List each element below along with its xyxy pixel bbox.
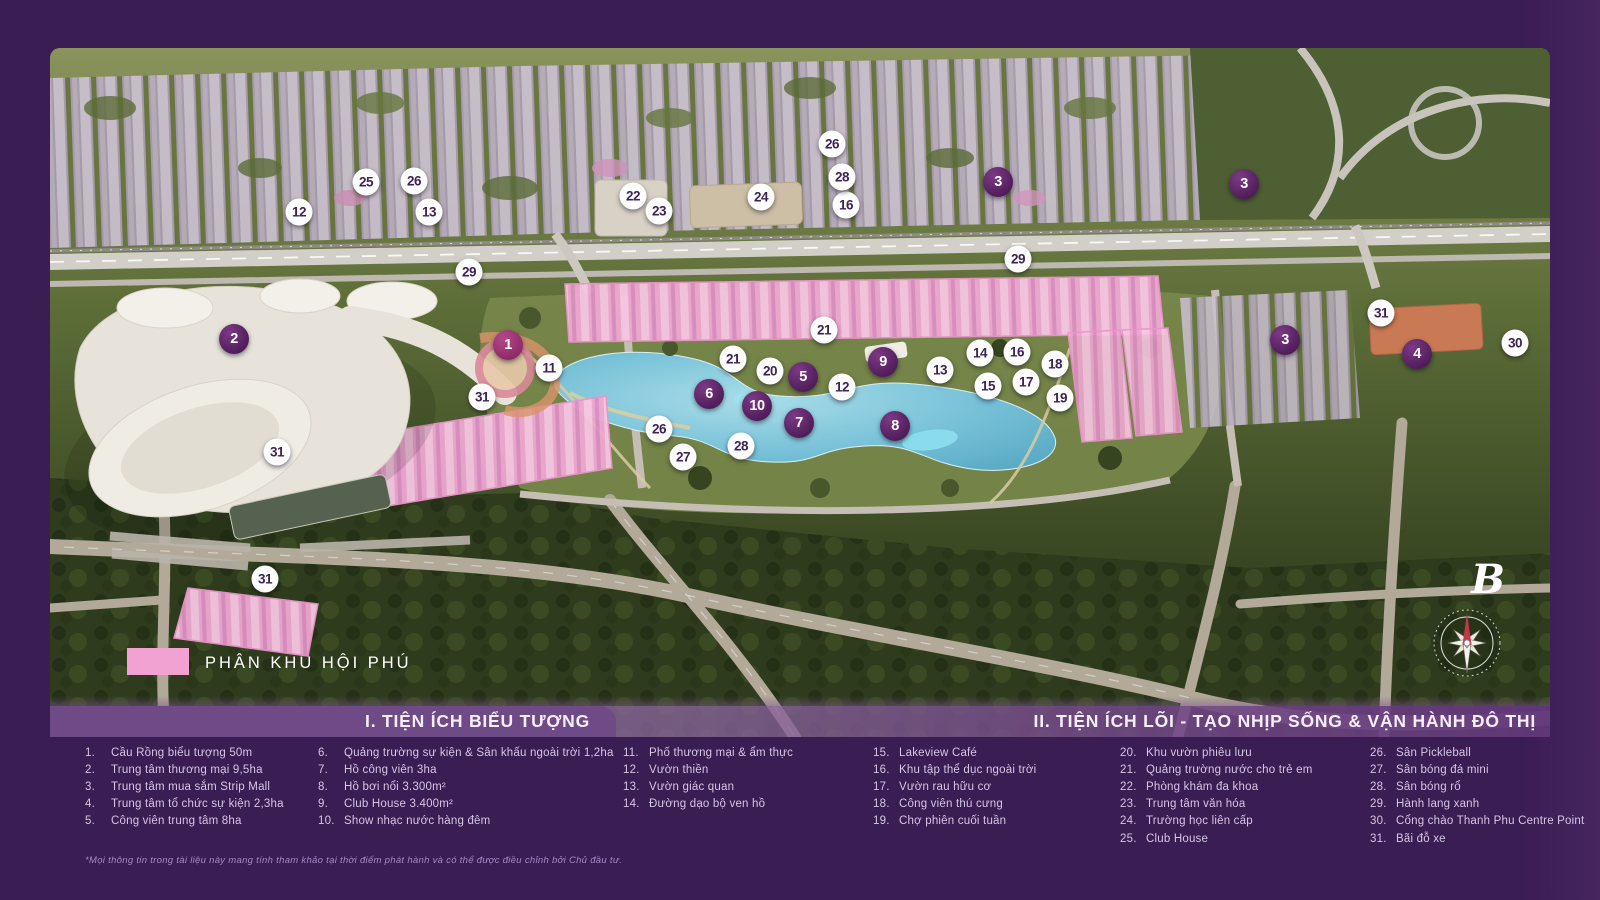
legend-item: 8.Hồ bơi nổi 3.300m² [318,778,614,795]
legend-column-6: 26.Sân Pickleball27.Sân bóng đá mini28.S… [1370,744,1584,847]
map-marker-29: 29 [456,259,483,286]
map-marker-29: 29 [1005,246,1032,273]
map-marker-19: 19 [1047,385,1074,412]
legend-item-number: 7. [318,764,344,776]
masterplan-aerial-art: B PHÂN KHU HỘI PHÚ [50,48,1550,737]
legend-item: 9.Club House 3.400m² [318,796,614,813]
legend-item: 16.Khu tập thể dục ngoài trời [873,761,1036,778]
legend-item: 27.Sân bóng đá mini [1370,761,1584,778]
masterplan-map: B PHÂN KHU HỘI PHÚ 213334567891011121213… [50,48,1550,737]
legend-item-number: 31. [1370,833,1396,845]
legend-item-number: 10. [318,815,344,827]
legend-item: 30.Cổng chào Thanh Phu Centre Point [1370,813,1584,830]
map-marker-3: 3 [983,167,1013,197]
legend-item: 19.Chợ phiên cuối tuần [873,813,1036,830]
map-marker-31: 31 [469,384,496,411]
right-housing [1180,290,1360,428]
legend-item: 28.Sân bóng rổ [1370,778,1584,795]
legend-item-label: Club House 3.400m² [344,798,453,810]
legend-item-number: 3. [85,781,111,793]
legend-item-label: Công viên trung tâm 8ha [111,815,242,827]
legend-item: 7.Hồ công viên 3ha [318,761,614,778]
legend-item-label: Bãi đỗ xe [1396,833,1446,845]
map-marker-18: 18 [1042,351,1069,378]
legend-item-number: 2. [85,764,111,776]
legend-item-number: 17. [873,781,899,793]
legend-item: 17.Vườn rau hữu cơ [873,778,1036,795]
map-marker-7: 7 [784,408,814,438]
map-marker-20: 20 [757,358,784,385]
map-marker-26: 26 [401,168,428,195]
legend-column-2: 6.Quảng trường sự kiện & Sân khấu ngoài … [318,744,614,830]
map-marker-17: 17 [1013,369,1040,396]
legend-item-label: Khu vườn phiêu lưu [1146,747,1252,759]
section2-header: II. TIỆN ÍCH LÕI - TẠO NHỊP SỐNG & VẬN H… [1034,711,1536,732]
legend-item-number: 4. [85,798,111,810]
legend-item: 31.Bãi đỗ xe [1370,830,1584,847]
legend-item: 26.Sân Pickleball [1370,744,1584,761]
legend-item: 15.Lakeview Café [873,744,1036,761]
map-marker-26: 26 [646,416,673,443]
legend-item: 21.Quảng trường nước cho trẻ em [1120,761,1312,778]
footnote: *Mọi thông tin trong tài liệu này mang t… [85,855,622,866]
legend-column-3: 11.Phố thương mại & ẩm thực12.Vườn thiền… [623,744,793,813]
legend-item: 3.Trung tâm mua sắm Strip Mall [85,778,284,795]
compass-icon [1433,609,1501,677]
map-marker-16: 16 [833,192,860,219]
legend-item-number: 11. [623,747,649,759]
map-marker-5: 5 [788,362,818,392]
map-marker-8: 8 [880,411,910,441]
legend-item-number: 22. [1120,781,1146,793]
legend-column-4: 15.Lakeview Café16.Khu tập thể dục ngoài… [873,744,1036,830]
map-marker-30: 30 [1502,330,1529,357]
legend-item-label: Sân Pickleball [1396,747,1471,759]
legend-item: 18.Công viên thú cưng [873,796,1036,813]
legend-item-label: Vườn giác quan [649,781,734,793]
section1-header: I. TIỆN ÍCH BIỂU TƯỢNG [365,711,590,732]
map-marker-6: 6 [694,379,724,409]
legend-item-number: 5. [85,815,111,827]
map-marker-31: 31 [264,439,291,466]
legend-item-number: 25. [1120,833,1146,845]
map-marker-12: 12 [829,374,856,401]
legend-item-label: Sân bóng rổ [1396,781,1461,793]
legend-item-label: Quảng trường nước cho trẻ em [1146,764,1312,776]
legend-item-label: Trung tâm mua sắm Strip Mall [111,781,270,793]
legend-item: 13.Vườn giác quan [623,778,793,795]
map-marker-3: 3 [1229,169,1259,199]
map-marker-16: 16 [1004,339,1031,366]
legend-item-number: 16. [873,764,899,776]
region-label: PHÂN KHU HỘI PHÚ [205,653,412,672]
legend-item: 4.Trung tâm tổ chức sự kiện 2,3ha [85,796,284,813]
map-marker-23: 23 [646,198,673,225]
map-marker-28: 28 [728,433,755,460]
legend-band: I. TIỆN ÍCH BIỂU TƯỢNG II. TIỆN ÍCH LÕI … [50,706,1550,737]
legend-item: 29.Hành lang xanh [1370,796,1584,813]
legend-item-label: Phố thương mại & ẩm thực [649,747,793,759]
legend-column-1: 1.Cầu Rồng biểu tượng 50m2.Trung tâm thư… [85,744,284,830]
legend-item-label: Quảng trường sự kiện & Sân khấu ngoài tr… [344,747,614,759]
legend-item-number: 27. [1370,764,1396,776]
legend-item-number: 23. [1120,798,1146,810]
map-marker-28: 28 [829,164,856,191]
legend-item-label: Trường học liên cấp [1146,815,1253,827]
legend-item: 20.Khu vườn phiêu lưu [1120,744,1312,761]
legend-item-number: 30. [1370,815,1396,827]
legend-item-number: 9. [318,798,344,810]
legend-item-number: 18. [873,798,899,810]
map-marker-9: 9 [868,347,898,377]
map-marker-26: 26 [819,131,846,158]
map-marker-11: 11 [536,355,563,382]
map-marker-21: 21 [720,346,747,373]
map-marker-21: 21 [811,317,838,344]
map-marker-13: 13 [416,199,443,226]
legend-item-label: Sân bóng đá mini [1396,764,1489,776]
legend-item-number: 24. [1120,815,1146,827]
legend-item-label: Công viên thú cưng [899,798,1003,810]
map-marker-27: 27 [670,444,697,471]
legend-item-label: Khu tập thể dục ngoài trời [899,764,1036,776]
legend-item-number: 28. [1370,781,1396,793]
legend-item-label: Show nhạc nước hàng đêm [344,815,490,827]
legend-item-label: Lakeview Café [899,747,977,759]
legend-column-5: 20.Khu vườn phiêu lưu21.Quảng trường nướ… [1120,744,1312,847]
region-swatch [127,648,189,675]
legend-item-number: 14. [623,798,649,810]
legend-item-label: Đường dạo bộ ven hồ [649,798,765,810]
legend-item: 24.Trường học liên cấp [1120,813,1312,830]
map-marker-1: 1 [493,330,523,360]
legend-item-number: 12. [623,764,649,776]
legend-item: 14.Đường dạo bộ ven hồ [623,796,793,813]
legend-item-label: Chợ phiên cuối tuần [899,815,1006,827]
legend-item-number: 21. [1120,764,1146,776]
legend-item-label: Hành lang xanh [1396,798,1479,810]
legend-item: 12.Vườn thiền [623,761,793,778]
map-marker-4: 4 [1402,339,1432,369]
legend-item: 2.Trung tâm thương mại 9,5ha [85,761,284,778]
legend-item-label: Hồ bơi nổi 3.300m² [344,781,446,793]
legend-item-label: Cầu Rồng biểu tượng 50m [111,747,252,759]
legend-item-label: Hồ công viên 3ha [344,764,437,776]
legend-item: 1.Cầu Rồng biểu tượng 50m [85,744,284,761]
legend-item: 23.Trung tâm văn hóa [1120,796,1312,813]
legend-item-number: 8. [318,781,344,793]
legend-item: 6.Quảng trường sự kiện & Sân khấu ngoài … [318,744,614,761]
legend-item-label: Trung tâm văn hóa [1146,798,1246,810]
map-marker-14: 14 [967,340,994,367]
map-marker-3: 3 [1270,325,1300,355]
legend-item-number: 26. [1370,747,1396,759]
legend-item-number: 15. [873,747,899,759]
legend-item: 11.Phố thương mại & ẩm thực [623,744,793,761]
school-building [689,182,802,228]
legend-item: 22.Phòng khám đa khoa [1120,778,1312,795]
map-marker-10: 10 [742,391,772,421]
legend-item-label: Phòng khám đa khoa [1146,781,1258,793]
legend-item-number: 6. [318,747,344,759]
legend-item-label: Vườn rau hữu cơ [899,781,991,793]
legend-item-number: 20. [1120,747,1146,759]
legend-item-number: 29. [1370,798,1396,810]
map-marker-12: 12 [286,199,313,226]
map-marker-25: 25 [353,169,380,196]
legend-item: 5.Công viên trung tâm 8ha [85,813,284,830]
legend-item-label: Trung tâm tổ chức sự kiện 2,3ha [111,798,284,810]
legend-item-number: 13. [623,781,649,793]
north-label: B [1470,556,1505,603]
map-marker-13: 13 [927,357,954,384]
map-marker-22: 22 [620,183,647,210]
legend-item-label: Vườn thiền [649,764,708,776]
map-marker-31: 31 [1368,300,1395,327]
legend-item: 10.Show nhạc nước hàng đêm [318,813,614,830]
legend-item-number: 1. [85,747,111,759]
legend-item-label: Club House [1146,833,1208,845]
map-marker-2: 2 [219,324,249,354]
legend-item-label: Trung tâm thương mại 9,5ha [111,764,263,776]
section1-ribbon: I. TIỆN ÍCH BIỂU TƯỢNG [50,706,616,737]
map-marker-24: 24 [748,184,775,211]
legend-item: 25.Club House [1120,830,1312,847]
map-marker-31: 31 [252,566,279,593]
legend-item-number: 19. [873,815,899,827]
section2-ribbon: II. TIỆN ÍCH LÕI - TẠO NHỊP SỐNG & VẬN H… [1034,706,1536,737]
legend-item-label: Cổng chào Thanh Phu Centre Point [1396,815,1584,827]
map-marker-15: 15 [975,373,1002,400]
